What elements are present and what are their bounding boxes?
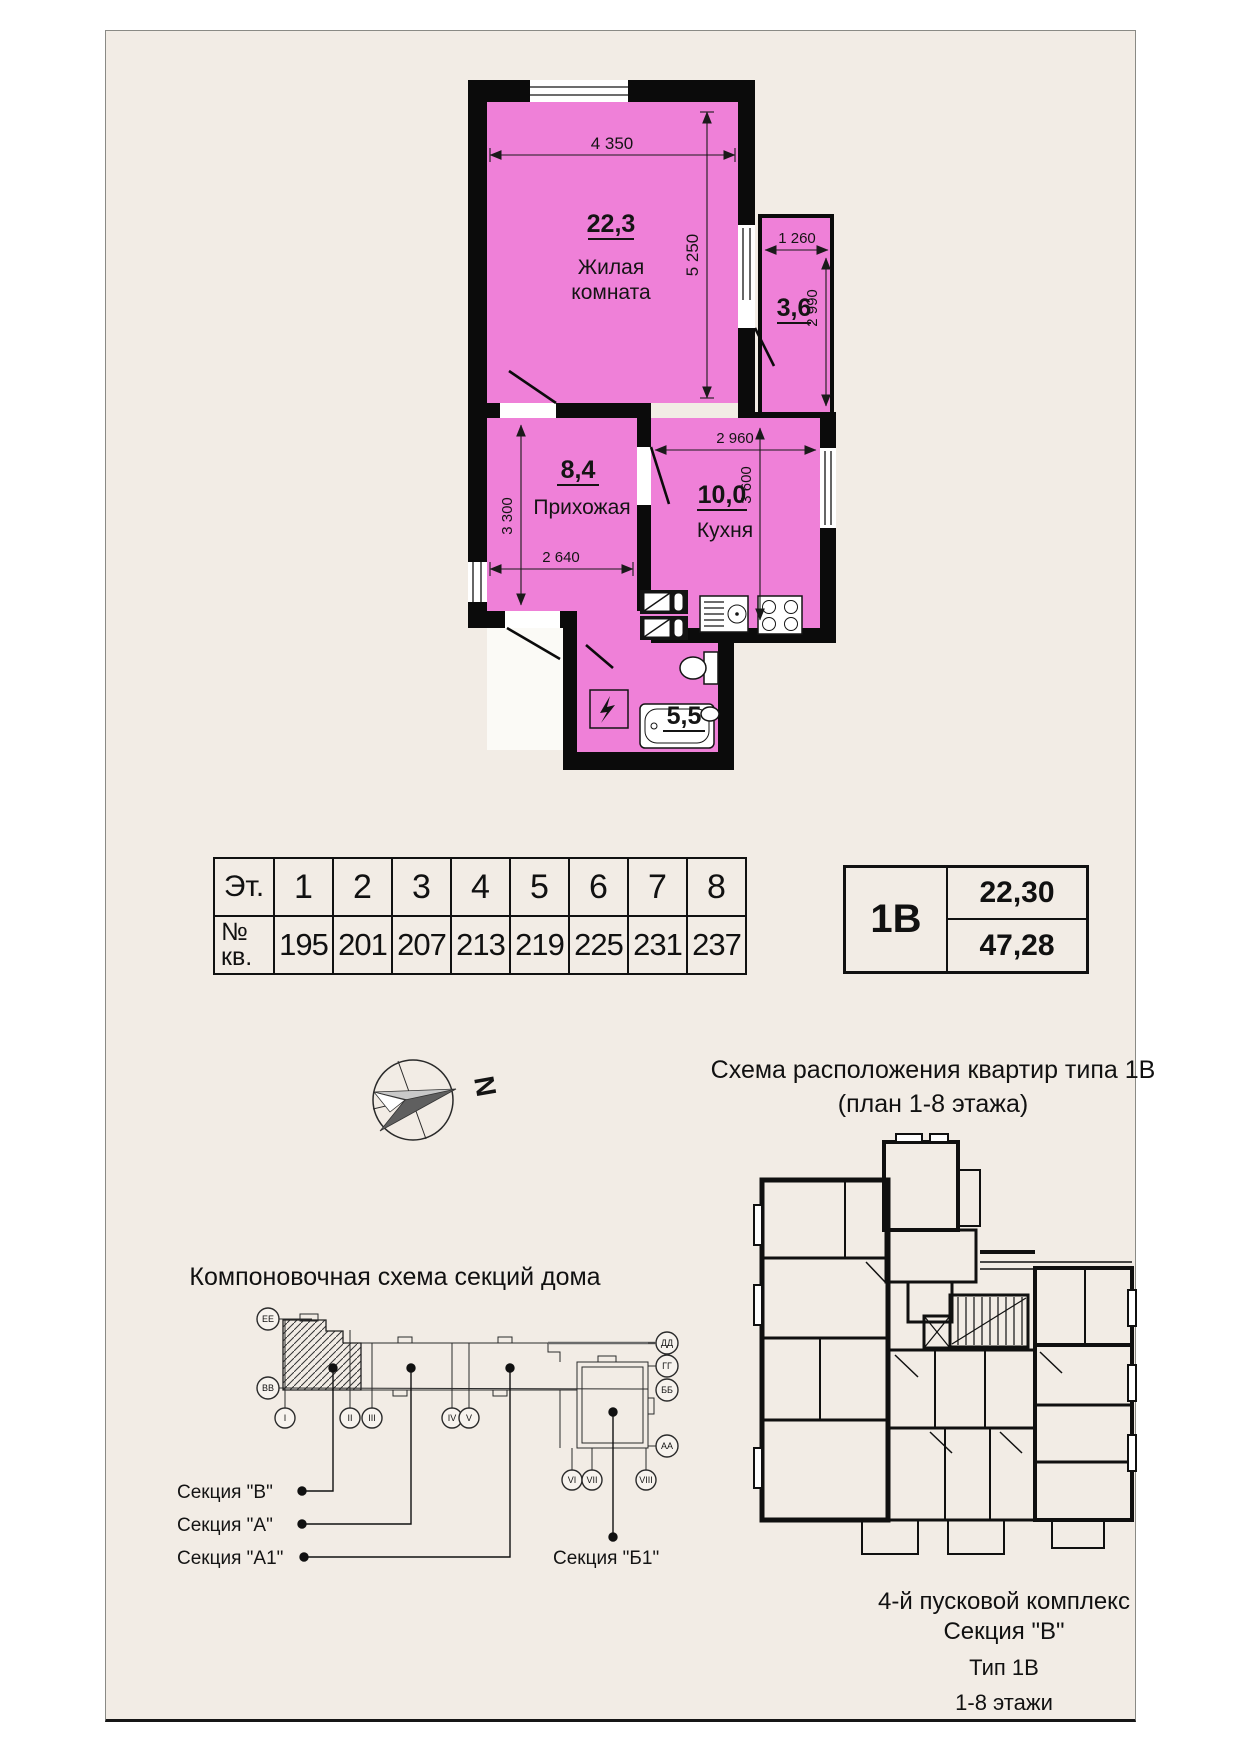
kitchen-area: 10,0 bbox=[698, 481, 747, 509]
window-kitchen-right bbox=[820, 448, 836, 528]
dim-living-height: 5 250 bbox=[683, 234, 702, 277]
north-label: N bbox=[468, 1074, 502, 1099]
dim-living-width: 4 350 bbox=[591, 134, 634, 153]
col-vii: VII bbox=[586, 1475, 597, 1485]
footer-line-4: 1-8 этажи bbox=[955, 1690, 1053, 1716]
dim-kitchen-width: 2 960 bbox=[716, 430, 754, 447]
location-scheme-title-1: Схема расположения квартир типа 1В bbox=[711, 1056, 1156, 1085]
label-section-v: Секция "В" bbox=[177, 1482, 273, 1503]
floor-row-label: Эт. bbox=[214, 858, 274, 916]
col-i: I bbox=[284, 1413, 287, 1423]
floorplan-sheet: { "colors": {"room_fill":"#ef80d8","wall… bbox=[0, 0, 1240, 1754]
apt-cell: 237 bbox=[687, 916, 746, 974]
bath-area: 5,5 bbox=[667, 702, 702, 730]
section-leaders bbox=[298, 1364, 617, 1561]
floor-cell: 8 bbox=[687, 858, 746, 916]
building-walls bbox=[754, 1134, 1136, 1554]
sink-icon bbox=[701, 707, 719, 721]
floors-table: Эт. 1 2 3 4 5 6 7 8 № кв. 195 201 207 21… bbox=[213, 857, 747, 975]
door-swings bbox=[866, 1262, 1062, 1453]
apt-cell: 219 bbox=[510, 916, 569, 974]
stove-icon bbox=[758, 596, 802, 634]
section-v-hatched bbox=[283, 1320, 361, 1390]
unit-1v-balcony-hatched bbox=[958, 1170, 980, 1226]
dim-hall-height: 3 300 bbox=[499, 497, 516, 535]
apt-cell: 207 bbox=[392, 916, 451, 974]
apartment-type: 1В bbox=[845, 867, 947, 972]
floor-cell: 6 bbox=[569, 858, 628, 916]
total-area-value: 47,28 bbox=[947, 919, 1087, 972]
stair-core bbox=[950, 1295, 1028, 1347]
footer-line-3: Тип 1В bbox=[969, 1655, 1039, 1681]
apt-cell: 225 bbox=[569, 916, 628, 974]
hall-area: 8,4 bbox=[561, 456, 596, 484]
apt-cell: 231 bbox=[628, 916, 687, 974]
floor-cell: 5 bbox=[510, 858, 569, 916]
axis-ee: ЕЕ bbox=[262, 1314, 274, 1324]
section-scheme: ЕЕ ВВ ДД ГГ ББ АА I II III IV V VI VII V… bbox=[150, 1295, 710, 1585]
col-vi: VI bbox=[568, 1475, 577, 1485]
room-area-value: 22,30 bbox=[947, 867, 1087, 919]
label-section-a: Секция "А" bbox=[177, 1515, 273, 1536]
axis-vv: ВВ bbox=[262, 1383, 274, 1393]
compass: N bbox=[340, 1030, 510, 1170]
dim-balcony-width: 1 260 bbox=[778, 230, 816, 247]
unit-1v-hatched bbox=[884, 1142, 958, 1230]
col-v: V bbox=[466, 1413, 472, 1423]
floor-cell: 4 bbox=[451, 858, 510, 916]
floor-cell: 1 bbox=[274, 858, 333, 916]
apt-cell: 195 bbox=[274, 916, 333, 974]
col-iv: IV bbox=[448, 1413, 457, 1423]
hall-name: Прихожая bbox=[533, 496, 630, 519]
col-iii: III bbox=[368, 1413, 376, 1423]
kitchen-sink-icon bbox=[700, 596, 748, 632]
type-area-box: 1В 22,30 47,28 bbox=[843, 865, 1089, 974]
balcony-area: 3,6 bbox=[777, 294, 812, 322]
living-name-2: комната bbox=[571, 281, 651, 304]
floor-cell: 7 bbox=[628, 858, 687, 916]
col-ii: II bbox=[347, 1413, 352, 1423]
apt-cell: 201 bbox=[333, 916, 392, 974]
location-scheme-title-2: (план 1-8 этажа) bbox=[838, 1090, 1028, 1119]
apartment-plan: 4 350 5 250 1 260 2 990 3 300 2 640 2 96… bbox=[400, 60, 860, 780]
entry-lobby bbox=[487, 628, 563, 750]
living-name-1: Жилая bbox=[578, 256, 644, 279]
footer-line-1: 4-й пусковой комплекс bbox=[878, 1588, 1130, 1616]
apt-cell: 213 bbox=[451, 916, 510, 974]
living-area: 22,3 bbox=[587, 210, 636, 238]
floor-cell: 3 bbox=[392, 858, 451, 916]
building-plan bbox=[650, 1120, 1145, 1580]
label-section-a1: Секция "А1" bbox=[177, 1548, 283, 1569]
kitchen-name: Кухня bbox=[697, 519, 753, 542]
rooms bbox=[484, 102, 830, 752]
window-top bbox=[530, 80, 628, 102]
hall-extension-fill bbox=[577, 611, 651, 643]
section-scheme-title: Компоновочная схема секций дома bbox=[189, 1263, 600, 1292]
window-left bbox=[468, 562, 487, 602]
section-labels: Секция "В" Секция "А" Секция "А1" Секция… bbox=[177, 1482, 659, 1569]
apt-row-label: № кв. bbox=[214, 916, 274, 974]
footer-line-2: Секция "В" bbox=[943, 1618, 1064, 1646]
floor-cell: 2 bbox=[333, 858, 392, 916]
dim-hall-width: 2 640 bbox=[542, 549, 580, 566]
label-section-b1: Секция "Б1" bbox=[553, 1548, 659, 1569]
